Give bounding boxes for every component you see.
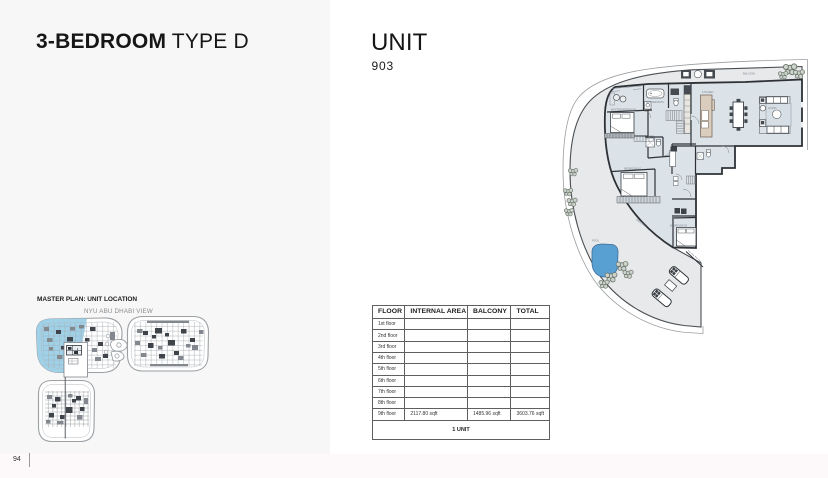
svg-text:KITCHEN: KITCHEN bbox=[702, 90, 714, 94]
svg-text:BEDROOM 02: BEDROOM 02 bbox=[624, 167, 642, 171]
svg-text:BALCONY: BALCONY bbox=[743, 72, 756, 76]
svg-text:MASTER BEDROOM: MASTER BEDROOM bbox=[611, 108, 636, 112]
svg-text:POOL: POOL bbox=[592, 239, 600, 243]
svg-text:BEDROOM 03: BEDROOM 03 bbox=[670, 224, 688, 228]
svg-text:LIVING: LIVING bbox=[768, 106, 777, 110]
svg-text:MASTER BATH: MASTER BATH bbox=[646, 100, 664, 104]
